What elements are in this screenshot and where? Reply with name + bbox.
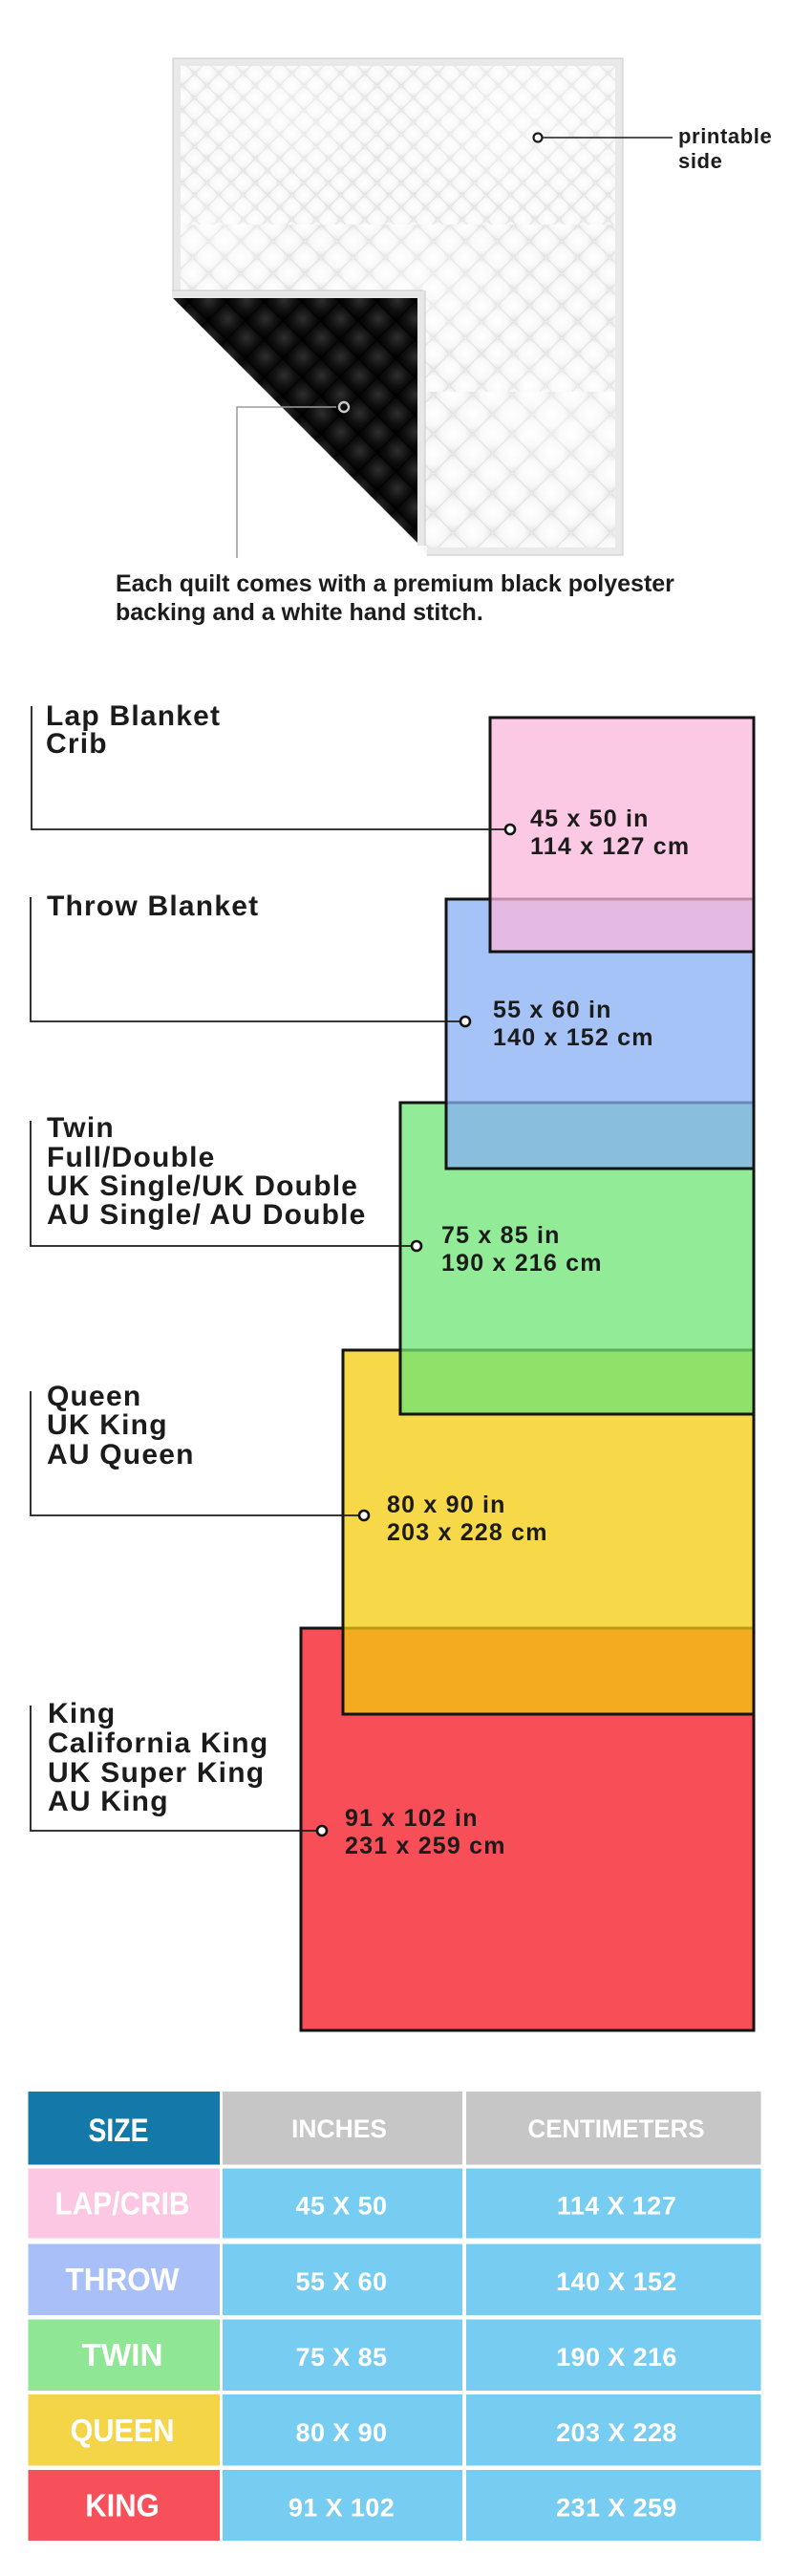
svg-text:AU Single/ AU Double: AU Single/ AU Double	[47, 1199, 367, 1231]
svg-text:California King: California King	[48, 1728, 268, 1759]
svg-text:Throw Blanket: Throw Blanket	[47, 891, 259, 922]
svg-text:140 X 152: 140 X 152	[556, 2267, 677, 2296]
svg-text:190 x 216 cm: 190 x 216 cm	[441, 1250, 603, 1277]
svg-text:UK Single/UK Double: UK Single/UK Double	[47, 1170, 358, 1202]
svg-text:printable: printable	[678, 124, 772, 148]
svg-text:SIZE: SIZE	[89, 2113, 149, 2149]
svg-text:AU King: AU King	[48, 1786, 169, 1817]
svg-text:CENTIMETERS: CENTIMETERS	[528, 2114, 705, 2143]
svg-text:91 X 102: 91 X 102	[289, 2494, 395, 2522]
svg-text:Each quilt comes with a premiu: Each quilt comes with a premium black po…	[116, 570, 674, 597]
svg-text:190 X 216: 190 X 216	[556, 2343, 677, 2372]
svg-text:45 x 50 in: 45 x 50 in	[530, 805, 650, 832]
svg-text:QUEEN: QUEEN	[71, 2413, 175, 2448]
svg-text:UK Super King: UK Super King	[48, 1757, 265, 1789]
svg-text:backing and a white hand stitc: backing and a white hand stitch.	[116, 599, 483, 626]
svg-text:Queen: Queen	[47, 1381, 141, 1412]
svg-text:75 X 85: 75 X 85	[296, 2343, 388, 2372]
svg-text:203 X 228: 203 X 228	[556, 2418, 677, 2447]
svg-text:Twin: Twin	[47, 1112, 115, 1144]
svg-text:203 x 228 cm: 203 x 228 cm	[387, 1519, 548, 1546]
svg-text:55 X 60: 55 X 60	[296, 2267, 388, 2296]
svg-text:55 x 60 in: 55 x 60 in	[493, 997, 612, 1023]
svg-text:side: side	[678, 149, 722, 173]
svg-text:Full/Double: Full/Double	[47, 1142, 216, 1173]
svg-text:45 X 50: 45 X 50	[296, 2192, 388, 2221]
svg-text:231 X 259: 231 X 259	[556, 2494, 677, 2522]
svg-text:KING: KING	[85, 2488, 160, 2523]
svg-text:91 x 102 in: 91 x 102 in	[345, 1805, 479, 1832]
svg-text:80 x 90 in: 80 x 90 in	[387, 1492, 506, 1518]
svg-text:AU Queen: AU Queen	[47, 1439, 195, 1470]
svg-text:UK King: UK King	[47, 1409, 168, 1441]
svg-text:INCHES: INCHES	[291, 2114, 387, 2143]
svg-text:114 x 127 cm: 114 x 127 cm	[530, 833, 690, 860]
svg-text:140 x 152 cm: 140 x 152 cm	[493, 1024, 654, 1051]
svg-text:75 x 85 in: 75 x 85 in	[441, 1222, 561, 1249]
svg-text:LAP/CRIB: LAP/CRIB	[55, 2186, 190, 2222]
svg-text:231 x 259 cm: 231 x 259 cm	[345, 1833, 506, 1859]
svg-text:80 X 90: 80 X 90	[296, 2418, 388, 2447]
svg-text:114 X 127: 114 X 127	[557, 2192, 676, 2221]
svg-text:Crib: Crib	[46, 728, 108, 760]
svg-text:THROW: THROW	[66, 2262, 181, 2297]
svg-text:TWIN: TWIN	[82, 2337, 163, 2372]
svg-text:King: King	[48, 1698, 116, 1729]
